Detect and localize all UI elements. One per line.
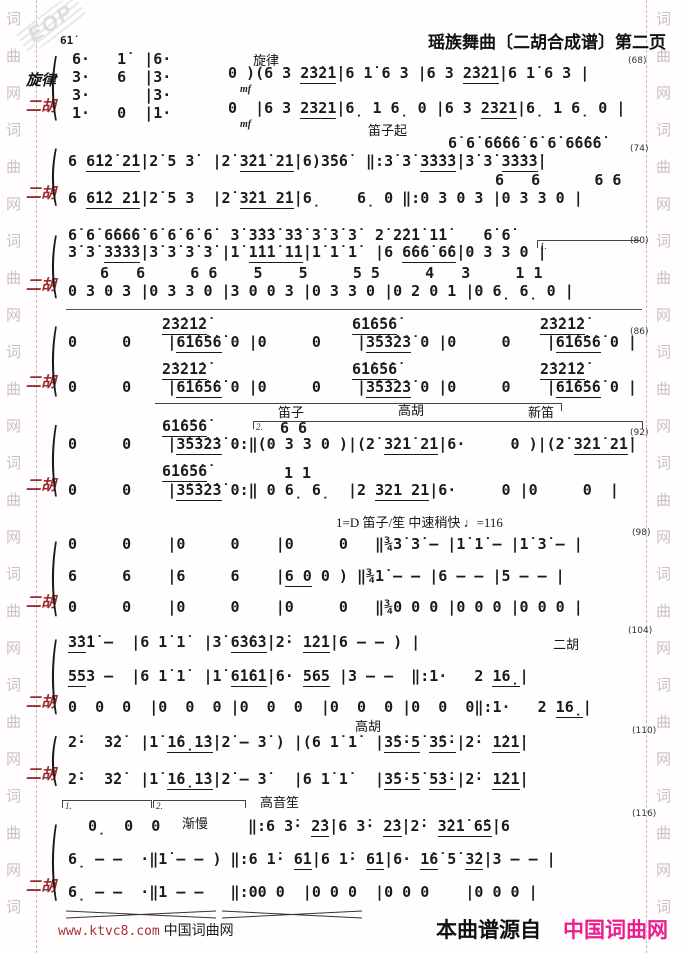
system-brace: ( <box>50 812 59 911</box>
instrument-annotation: 渐慢 <box>182 813 208 832</box>
instrument-annotation: 新笛 <box>528 402 554 421</box>
notation-line: 1· 0 |1· <box>72 104 171 122</box>
bracket-tick <box>253 422 254 429</box>
measure-number: (86) <box>630 327 648 337</box>
instrument-annotation: 高音笙 <box>260 792 299 811</box>
notation-line: 2̇3̇2̇1̇2̇ <box>162 360 207 378</box>
volta-number: 2. <box>156 801 163 811</box>
dynamic-marking: mf <box>240 84 251 95</box>
notation-line: 2̇3̇2̇1̇2̇ <box>540 315 585 333</box>
bracket-tick <box>153 801 154 808</box>
instrument-annotation: 二胡 <box>553 634 579 653</box>
page-title: 瑶族舞曲〔二胡合成谱〕第二页 <box>428 28 666 53</box>
notation-line: 6 6̇1̇2̇ 2̇1̇|2̇ 5 3̇ |2̇ 3̇2̇1̇ 2̇1̇|6)… <box>68 152 547 170</box>
footer-site-link[interactable]: www.ktvc8.com 中国词曲网 <box>58 920 234 940</box>
system-brace: ( <box>50 316 59 406</box>
notation-line: 0 0 |0 0 |0 0 ‖¾0 0 0 |0 0 0 |0 0 0 | <box>68 598 583 616</box>
notation-line: 6 6 6 6 5 5 5 5 4 3 1 1 <box>100 264 543 282</box>
measure-number: (74) <box>630 144 648 154</box>
volta-number: 1. <box>540 241 547 251</box>
volta-bracket: 1. <box>537 240 640 241</box>
measure-number: (98) <box>632 528 650 538</box>
footer-source-prefix: 本曲谱源自 <box>436 919 541 942</box>
system-separator-line <box>66 309 642 310</box>
system-brace: ( <box>50 140 59 214</box>
notation-line: 3· 6 |3· <box>72 68 171 86</box>
notation-line: 2̇· 3̇2̇ |1̇ 1̇6̣1̇3̇|2̇ – 3̇ ) |(6 1̇ 1… <box>68 733 529 751</box>
notation-line: 6 6 6 6 <box>495 171 621 189</box>
notation-line: 0 0 |0 0 |0 0 ‖¾3̇ 3̇ – |1̇ 1̇ – |1̇ 3̇ … <box>68 535 583 553</box>
bracket-tick <box>561 404 562 411</box>
system-brace: ( <box>50 728 59 792</box>
notation-line: 0 3 0 3 |0 3 3 0 |3 0 0 3 |0 3 3 0 |0 2 … <box>68 282 574 300</box>
notation-line: 0 0 |3̇5̇3̇2̇3̇ 0:‖(0 3 3 0 )|(2̇ 3̇2̇1̇… <box>68 435 637 453</box>
volta-bracket: 2. <box>253 421 643 422</box>
hairpin-dynamic <box>222 906 362 925</box>
notation-line: 6̣ – – ·‖1̇ – – ) ‖:6 1̇· 6̇1̇|6 1̇· 6̇1… <box>68 850 556 868</box>
notation-line: 0 0 |6̇1̇6̇5̇6̇ 0 |0 0 |3̇5̇3̇2̇3̇ 0 |0 … <box>68 378 637 396</box>
measure-number: (104) <box>628 626 652 636</box>
notation-line: 2̇3̇2̇1̇2̇ <box>162 315 207 333</box>
notation-line: 0 0 |6̇1̇6̇5̇6̇ 0 |0 0 |3̇5̇3̇2̇3̇ 0 |0 … <box>68 333 637 351</box>
volta-number: 1. <box>65 801 72 811</box>
footer-url[interactable]: www.ktvc8.com <box>58 924 160 939</box>
instrument-annotation: 1=D 笛子/笙 中速稍快 ♩=116 <box>336 512 503 531</box>
notation-line: 6̇1̇6̇5̇6̇ <box>352 360 397 378</box>
footer-sitename: 中国词曲网 <box>160 922 234 938</box>
notation-line: 6̇ 6̇ 6̇6̇6̇6̇ 6̇ 6̇ 6̇6̇6̇6̇ <box>448 134 602 152</box>
volta-bracket: 2. <box>153 800 246 801</box>
system-brace: ( <box>50 414 59 506</box>
notation-line: 3· |3· <box>72 86 171 104</box>
watermark-column-right: 词 曲 网 词 曲 网 词 曲 网 词 曲 网 词 曲 网 词 曲 网 词 曲 … <box>656 2 671 927</box>
notation-line: 553 – |6 1̇ 1̇ |1̇ 6̇1̇6̇1̇|6· 565 |3 – … <box>68 667 529 685</box>
system-brace: ( <box>50 628 59 725</box>
notation-line: 0 )(6 3 2̇3̇2̇1̇|6 1̇ 6 3 |6 3 2̇3̇2̇1̇|… <box>228 64 589 82</box>
bracket-tick <box>245 801 246 808</box>
footer-source-site: 中国词曲网 <box>563 919 668 942</box>
notation-line: 1 1 <box>284 464 311 482</box>
notation-line: 3̇3̇1̇ – |6 1̇ 1̇ |3̇ 6̇3̇6̇3̇|2̇· 1̇2̇1… <box>68 633 420 651</box>
notation-line: 6 6 |6 6 |6 0 0 ) ‖¾1̇ – – |6 – – |5 – –… <box>68 567 565 585</box>
notation-line: 0 0 |3̇5̇3̇2̇3̇ 0:‖ 0 6̣ 6̣ |2 321 21|6·… <box>68 481 619 499</box>
instrument-annotation: 笛子起 <box>368 120 407 139</box>
system-brace: ( <box>50 226 59 307</box>
volta-bracket: 1. <box>62 800 152 801</box>
system-brace: ( <box>50 530 59 627</box>
volta-bracket <box>155 403 562 404</box>
notation-line: 6̣ – – ·‖1 – – ‖:00 0 |0 0 0 |0 0 0 |0 0… <box>68 883 538 901</box>
notation-line: ‖:6 3̇· 2̇3̇|6 3̇· 2̇3̇|2̇· 3̇2̇1̇ 6̇5̇|… <box>248 817 510 835</box>
measure-number: (110) <box>632 726 656 736</box>
dynamic-marking: mf <box>240 119 251 130</box>
grace-notes: 6̇1̇ <box>60 34 73 47</box>
notation-line: 6̇ 6̇ 6̇6̇6̇6̇ 6̇ 6̇ 6̇ 6̇ 3̇ 3̇3̇3̇ 3̇3… <box>68 226 511 244</box>
score-page: 词 曲 网 词 曲 网 词 曲 网 词 曲 网 词 曲 网 词 曲 网 词 曲 … <box>0 0 688 953</box>
notation-line: 6̇1̇6̇5̇6̇ <box>162 417 207 435</box>
notation-line: 3̇ 3̇ 3̇3̇3̇3̇|3̇ 3̇ 3̇ 3̇ |1̇ 1̇1̇1̇ 1̇… <box>68 243 547 261</box>
notation-line: 2̇3̇2̇1̇2̇ <box>540 360 585 378</box>
measure-number: (92) <box>630 428 648 438</box>
volta-number: 2. <box>256 422 263 432</box>
notation-line: 2̇· 3̇2̇ |1̇ 1̇6̣1̇3̇|2̇ – 3̇ |6 1̇ 1̇ |… <box>68 770 529 788</box>
notation-line: 6̇1̇6̇5̇6̇ <box>352 315 397 333</box>
notation-line: 6 6̇1̇2 2̇1̇|2̇ 5 3 |2̇ 3̇2̇1 2̇1̇|6̣ 6̣… <box>68 189 583 207</box>
notation-line: 0 0 0 |0 0 0 |0 0 0 |0 0 0 |0 0 0‖:1· 2 … <box>68 698 592 716</box>
system-brace: ( <box>50 46 59 129</box>
measure-number: (68) <box>628 56 646 66</box>
footer-source-note: 本曲谱源自中国词曲网 <box>436 914 668 944</box>
bracket-tick <box>642 422 643 429</box>
bracket-tick <box>537 241 538 248</box>
notation-line: 6· 1̇ |6· <box>72 50 171 68</box>
measure-number: (116) <box>632 809 656 819</box>
bracket-tick <box>151 801 152 808</box>
watermark-column-left: 词 曲 网 词 曲 网 词 曲 网 词 曲 网 词 曲 网 词 曲 网 词 曲 … <box>6 2 21 927</box>
bracket-tick <box>62 801 63 808</box>
notation-line: 0̣ 0 0 <box>88 817 160 835</box>
measure-number: (80) <box>630 236 648 246</box>
notation-line: 6̇1̇6̇5̇6̇ <box>162 462 207 480</box>
notation-line: 0 |6 3 2321|6̣ 1 6̣ 0 |6 3 2321|6̣ 1 6̣ … <box>228 99 625 117</box>
